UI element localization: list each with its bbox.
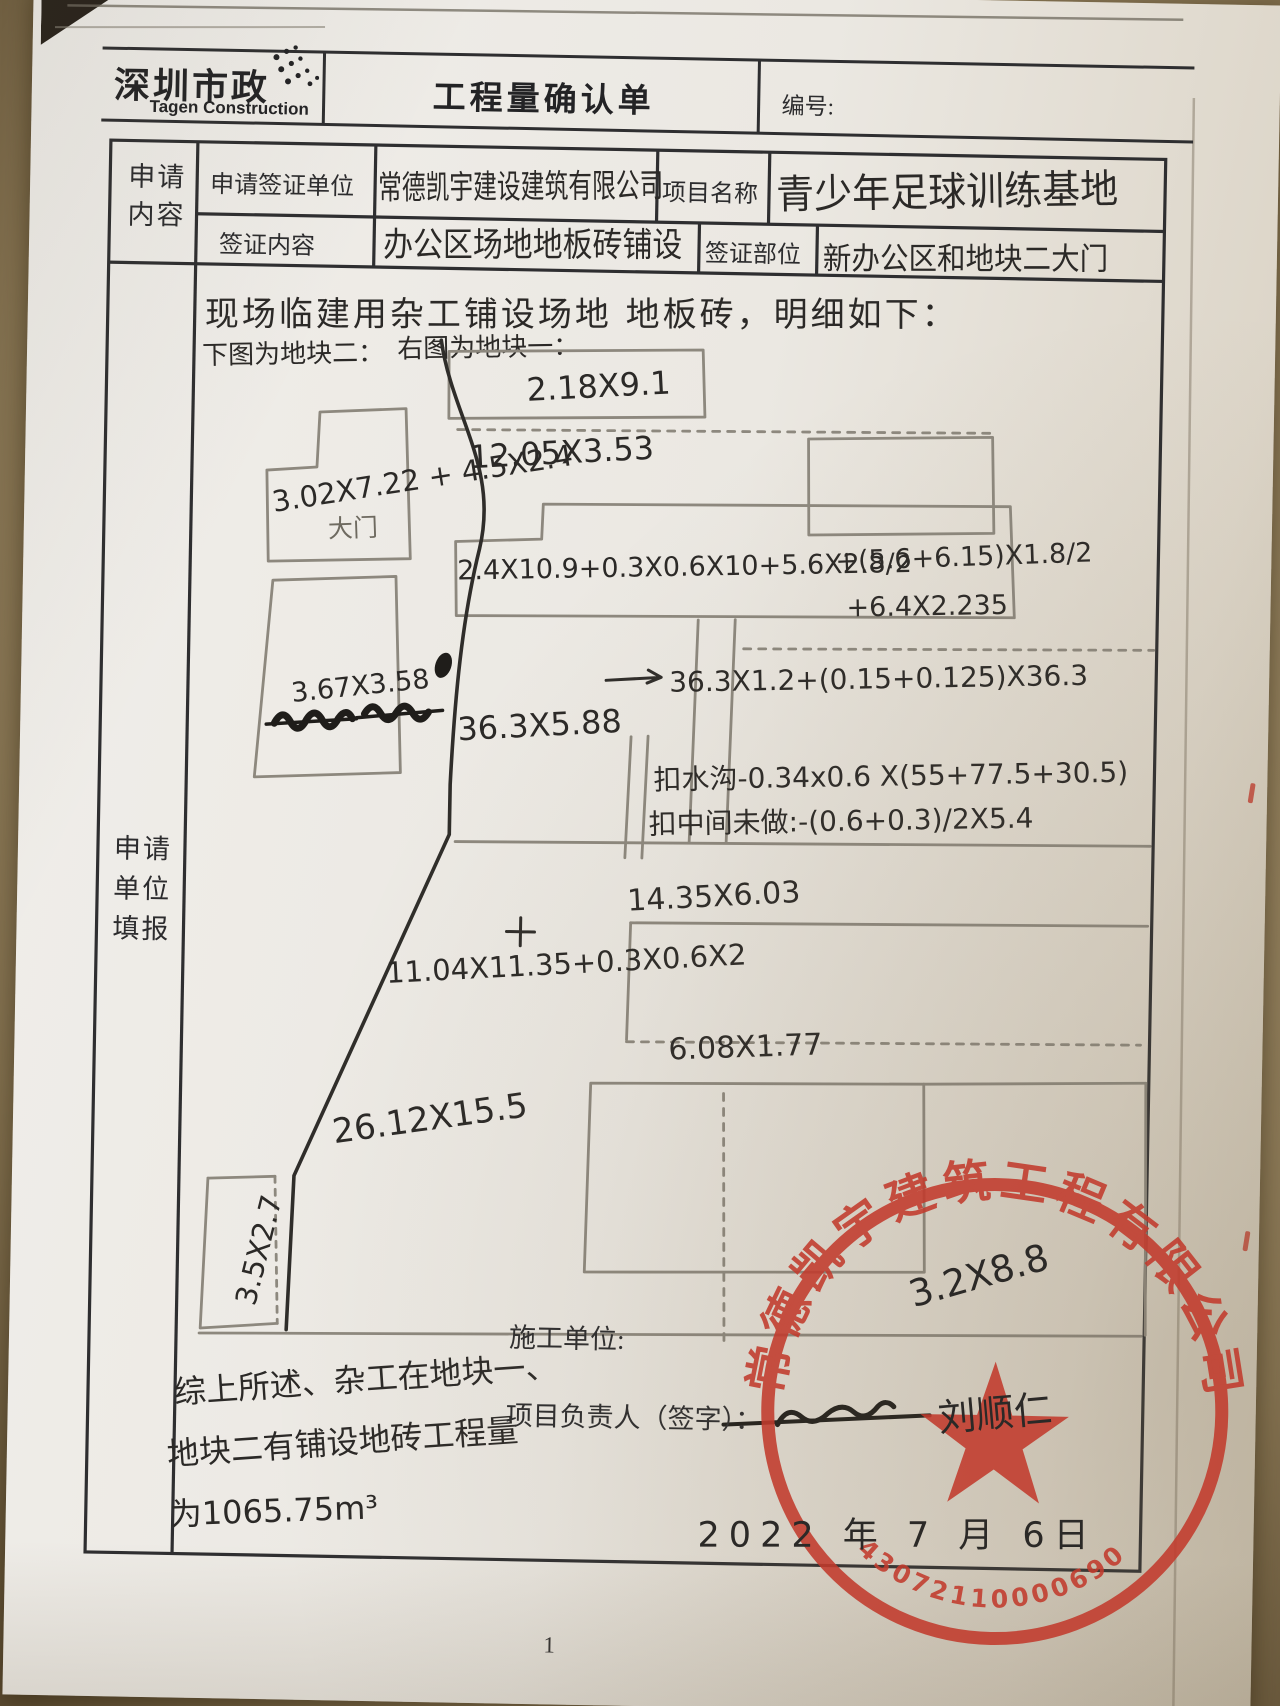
measurement-label: 2.18X9.1 (526, 363, 672, 408)
manager-label: 项目负责人（签字）： (505, 1394, 762, 1438)
deduction-line: 扣水沟-0.34x0.6 X(55+77.5+30.5) (653, 751, 1128, 799)
date-value: 2022 年 7 月 6日 (698, 1507, 1098, 1558)
manager-signature: 刘顺仁 (936, 1378, 1054, 1443)
summary-line: 为1065.75m³ (169, 1482, 379, 1535)
page-number: 1 (543, 1632, 555, 1658)
measurement-label: +6.4X2.235 (846, 590, 1008, 624)
gate-label: 大门 (327, 508, 378, 546)
measurement-label: 36.3X1.2+(0.15+0.125)X36.3 (669, 659, 1088, 699)
deduction-line: 扣中间未做:-(0.6+0.3)/2X5.4 (648, 796, 1033, 842)
measurement-label: 6.08X1.77 (668, 1027, 823, 1067)
scanned-document-photo: 深圳市政 Tagen Construction 工程量确认单 编号: (0, 0, 1280, 1706)
builder-label: 施工单位: (509, 1316, 625, 1357)
paper-sheet: 深圳市政 Tagen Construction 工程量确认单 编号: (2, 0, 1280, 1706)
